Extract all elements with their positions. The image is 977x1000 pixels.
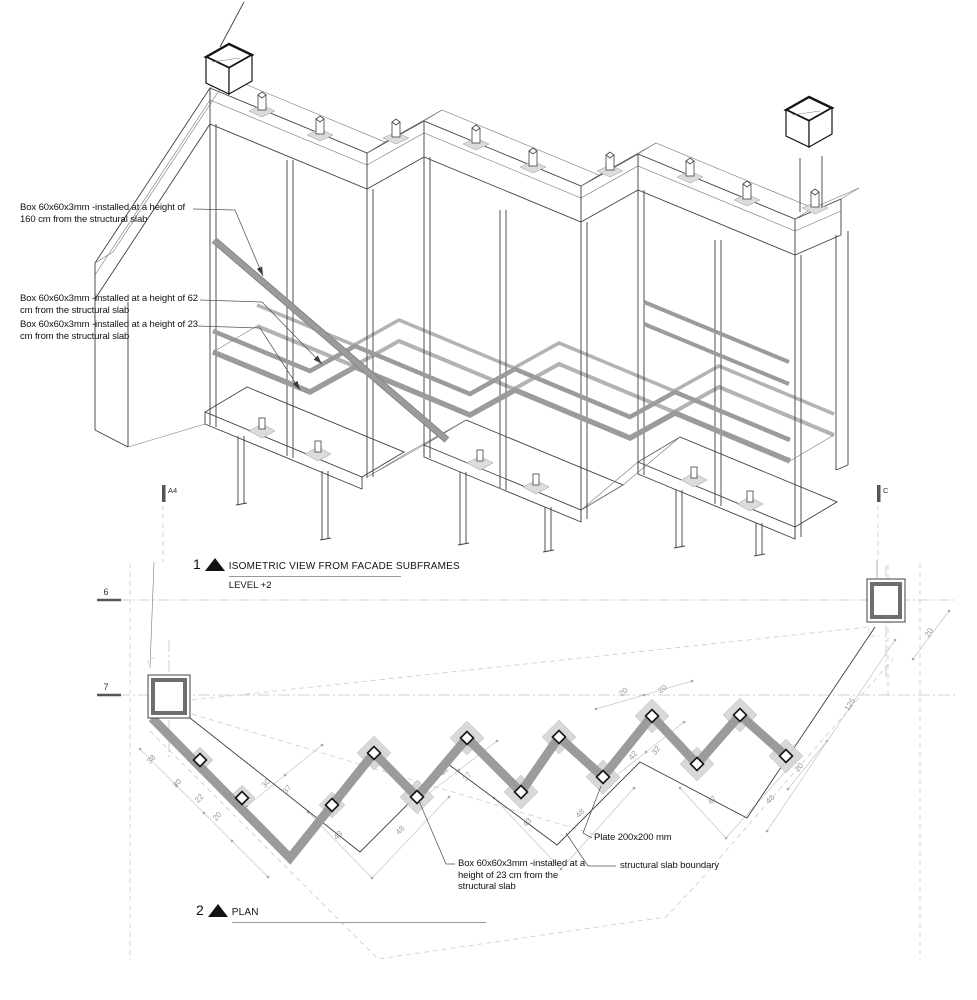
- svg-text:37: 37: [461, 770, 474, 783]
- section-line-a4: A4: [150, 485, 177, 668]
- view-marker-triangle-1: [205, 558, 225, 571]
- view-title-1-sublabel: LEVEL +2: [229, 580, 460, 591]
- view-title-2-label: PLAN: [232, 907, 259, 918]
- section-line-c: C: [877, 485, 889, 578]
- view-title-1-label: ISOMETRIC VIEW FROM FACADE SUBFRAMES: [229, 561, 460, 572]
- view-marker-triangle-2: [208, 904, 228, 917]
- callout-slab-boundary: structural slab boundary: [620, 860, 719, 872]
- iso-leader-lines: [193, 209, 322, 390]
- steel-column-topleft-iso: [206, 44, 252, 94]
- view-number-1: 1: [193, 556, 201, 572]
- view-title-isometric: 1 ISOMETRIC VIEW FROM FACADE SUBFRAMES L…: [193, 556, 460, 591]
- drawing-canvas: A4 C 6 7: [0, 0, 977, 1000]
- callout-box-62: Box 60x60x3mm -installed at a height of …: [20, 293, 198, 316]
- svg-text:A4: A4: [168, 486, 177, 495]
- svg-text:47: 47: [706, 794, 719, 807]
- section-line-top: [220, 2, 244, 47]
- mullions: [95, 124, 848, 538]
- svg-text:38: 38: [145, 753, 158, 766]
- architectural-drawing-sheet: { "iso": { "title_num": "1", "title": "I…: [0, 0, 977, 1000]
- callout-box-62-line1: Box 60x60x3mm -installed at a height of …: [20, 293, 198, 305]
- view-title-plan: 2 PLAN: [196, 902, 486, 923]
- view-number-2: 2: [196, 902, 204, 918]
- callout-box-160: Box 60x60x3mm -installed at a height of …: [20, 202, 185, 225]
- dimension-labels: 38 20 22 20 30 37 42 37 42 32 20 20 43 4…: [145, 626, 936, 842]
- svg-text:48: 48: [394, 824, 407, 837]
- callout-box-23-plan: Box 60x60x3mm -installed at a height of …: [458, 858, 585, 893]
- callout-box-23-line1: Box 60x60x3mm -installed at a height of …: [20, 319, 198, 331]
- callout-box-160-line1: Box 60x60x3mm -installed at a height of: [20, 202, 185, 214]
- callout-plate: Plate 200x200 mm: [594, 832, 672, 844]
- steel-column-topright-iso: [786, 97, 832, 212]
- dimension-lines: [139, 610, 951, 880]
- svg-text:43: 43: [332, 829, 345, 842]
- svg-text:20: 20: [211, 810, 224, 823]
- callout-box-23-line2: cm from the structural slab: [20, 331, 198, 343]
- svg-text:32: 32: [650, 744, 663, 757]
- bay-mid-rails: [644, 302, 789, 384]
- svg-text:7: 7: [103, 682, 108, 692]
- roof-posts: [249, 92, 828, 214]
- svg-text:37: 37: [281, 783, 294, 796]
- svg-text:C: C: [883, 486, 889, 495]
- svg-text:20: 20: [656, 682, 669, 695]
- view-title-2-underline: [232, 922, 486, 923]
- view-title-1-underline: [229, 576, 401, 577]
- svg-text:6: 6: [103, 587, 108, 597]
- column-left-plan: [148, 675, 190, 718]
- svg-text:20: 20: [171, 777, 184, 790]
- svg-text:20: 20: [617, 685, 630, 698]
- callout-box-62-line2: cm from the structural slab: [20, 305, 198, 317]
- rail-ring-back: [257, 305, 834, 435]
- callout-box-23: Box 60x60x3mm -installed at a height of …: [20, 319, 198, 342]
- svg-text:30: 30: [260, 777, 273, 790]
- svg-text:20: 20: [923, 626, 936, 639]
- rail-160: [212, 238, 449, 443]
- isometric-view: [95, 2, 859, 556]
- svg-text:22: 22: [193, 792, 206, 805]
- grid-lines: 6 7: [97, 563, 958, 960]
- callout-box-160-line2: 160 cm from the structural slab: [20, 214, 185, 226]
- plan-view: 6 7: [97, 563, 958, 960]
- column-right-plan: [867, 579, 905, 622]
